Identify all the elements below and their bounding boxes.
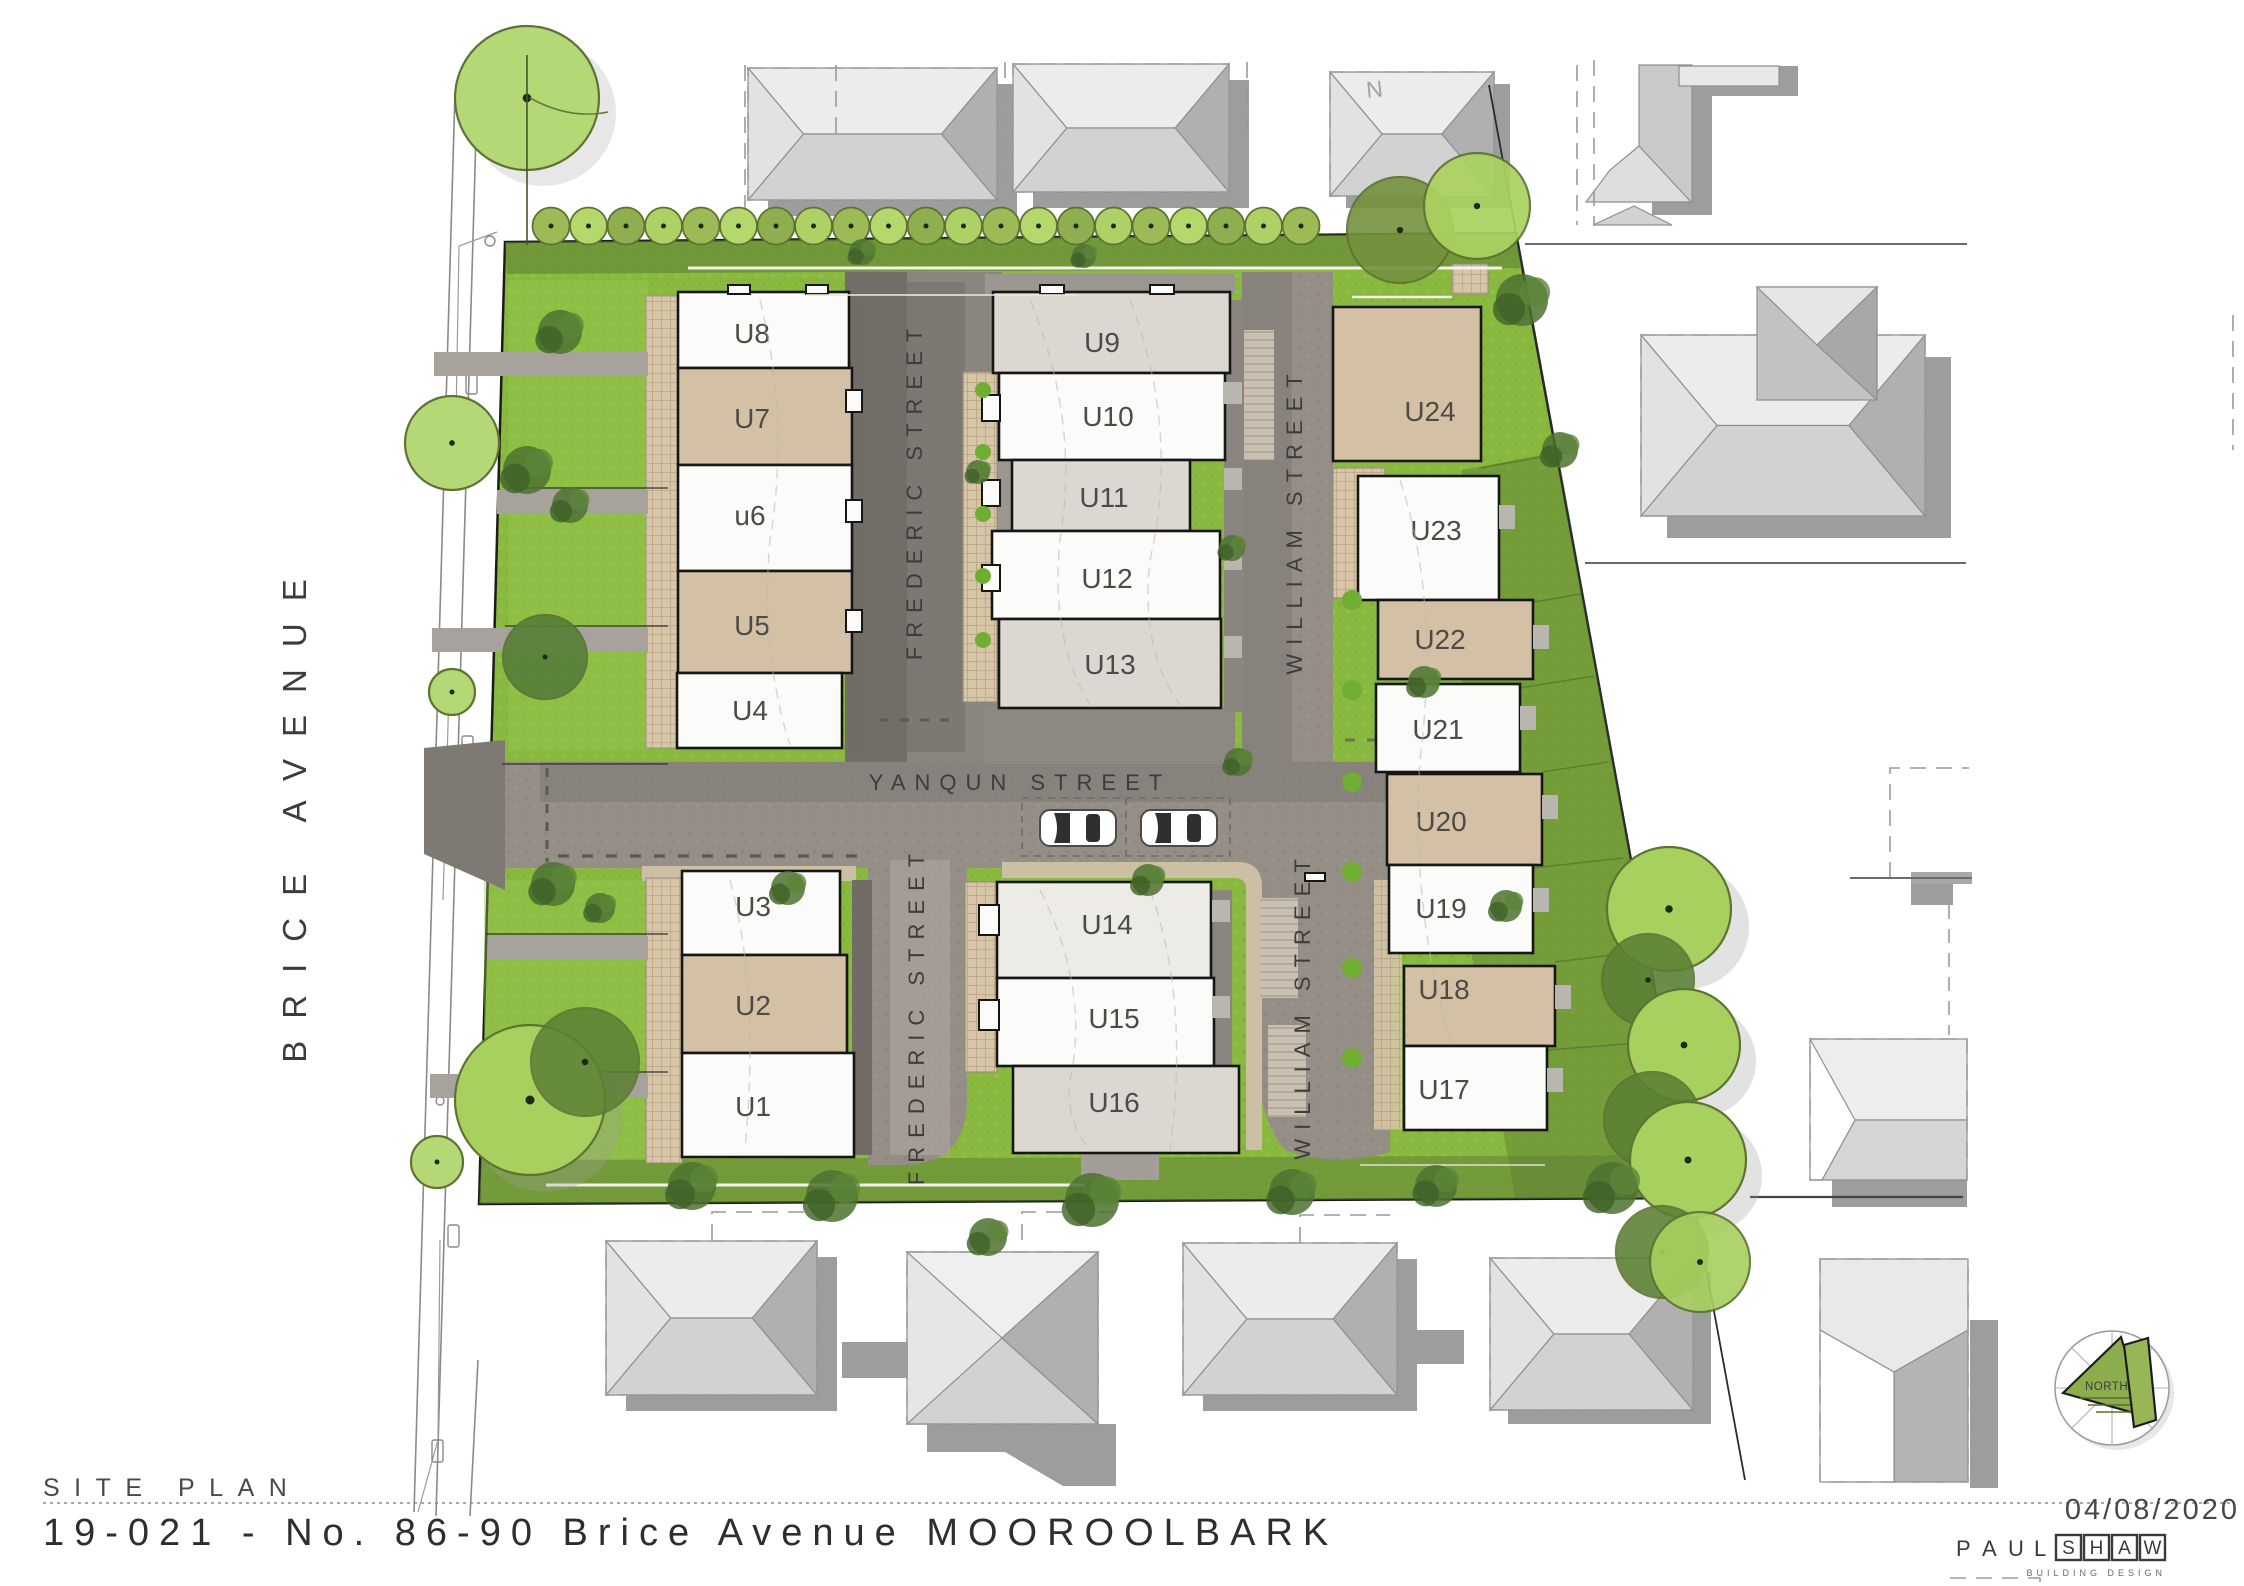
- svg-text:U16: U16: [1088, 1087, 1139, 1118]
- svg-text:U12: U12: [1081, 563, 1132, 594]
- svg-text:U4: U4: [732, 695, 768, 726]
- svg-text:U7: U7: [734, 403, 770, 434]
- svg-text:U21: U21: [1412, 714, 1463, 745]
- svg-text:H: H: [2090, 1538, 2104, 1559]
- svg-text:NORTH: NORTH: [2085, 1381, 2128, 1393]
- svg-text:P: P: [1956, 1536, 1971, 1561]
- svg-text:U18: U18: [1418, 974, 1469, 1005]
- svg-text:U9: U9: [1084, 327, 1120, 358]
- svg-text:U1: U1: [735, 1091, 771, 1122]
- svg-text:WILLIAM STREET: WILLIAM STREET: [1282, 365, 1307, 674]
- svg-text:WILLIAM STREET: WILLIAM STREET: [1290, 850, 1315, 1159]
- svg-text:S: S: [2062, 1538, 2075, 1559]
- svg-text:u6: u6: [734, 500, 765, 531]
- svg-text:U13: U13: [1084, 649, 1135, 680]
- svg-text:SITE PLAN: SITE PLAN: [43, 1474, 301, 1502]
- svg-text:U23: U23: [1410, 515, 1461, 546]
- svg-text:U3: U3: [735, 891, 771, 922]
- svg-text:YANQUN STREET: YANQUN STREET: [869, 770, 1171, 795]
- svg-text:04/08/2020: 04/08/2020: [2065, 1494, 2240, 1526]
- svg-text:U5: U5: [734, 610, 770, 641]
- svg-text:U: U: [2008, 1536, 2024, 1561]
- svg-text:L: L: [2034, 1536, 2046, 1561]
- svg-text:U17: U17: [1418, 1074, 1469, 1105]
- svg-text:U11: U11: [1079, 482, 1128, 513]
- svg-text:A: A: [2118, 1538, 2131, 1559]
- svg-text:U2: U2: [735, 990, 771, 1021]
- svg-text:19-021 - No. 86-90 Brice: 19-021 - No. 86-90 Brice Avenue MOOROOLB…: [43, 1512, 1338, 1554]
- svg-text:U10: U10: [1082, 401, 1133, 432]
- svg-text:U24: U24: [1404, 396, 1455, 427]
- svg-text:U22: U22: [1414, 624, 1465, 655]
- svg-text:A: A: [1982, 1536, 1997, 1561]
- svg-text:FREDERIC STREET: FREDERIC STREET: [902, 320, 927, 660]
- svg-text:U20: U20: [1415, 806, 1466, 837]
- svg-text:U14: U14: [1081, 909, 1132, 940]
- svg-text:N: N: [1365, 75, 1384, 103]
- svg-text:BRICE AVENUE: BRICE AVENUE: [276, 557, 313, 1062]
- svg-text:BUILDING DESIGN: BUILDING DESIGN: [2026, 1568, 2166, 1578]
- svg-text:U15: U15: [1088, 1003, 1139, 1034]
- svg-text:FREDERIC STREET: FREDERIC STREET: [904, 845, 929, 1185]
- svg-text:W: W: [2144, 1538, 2162, 1559]
